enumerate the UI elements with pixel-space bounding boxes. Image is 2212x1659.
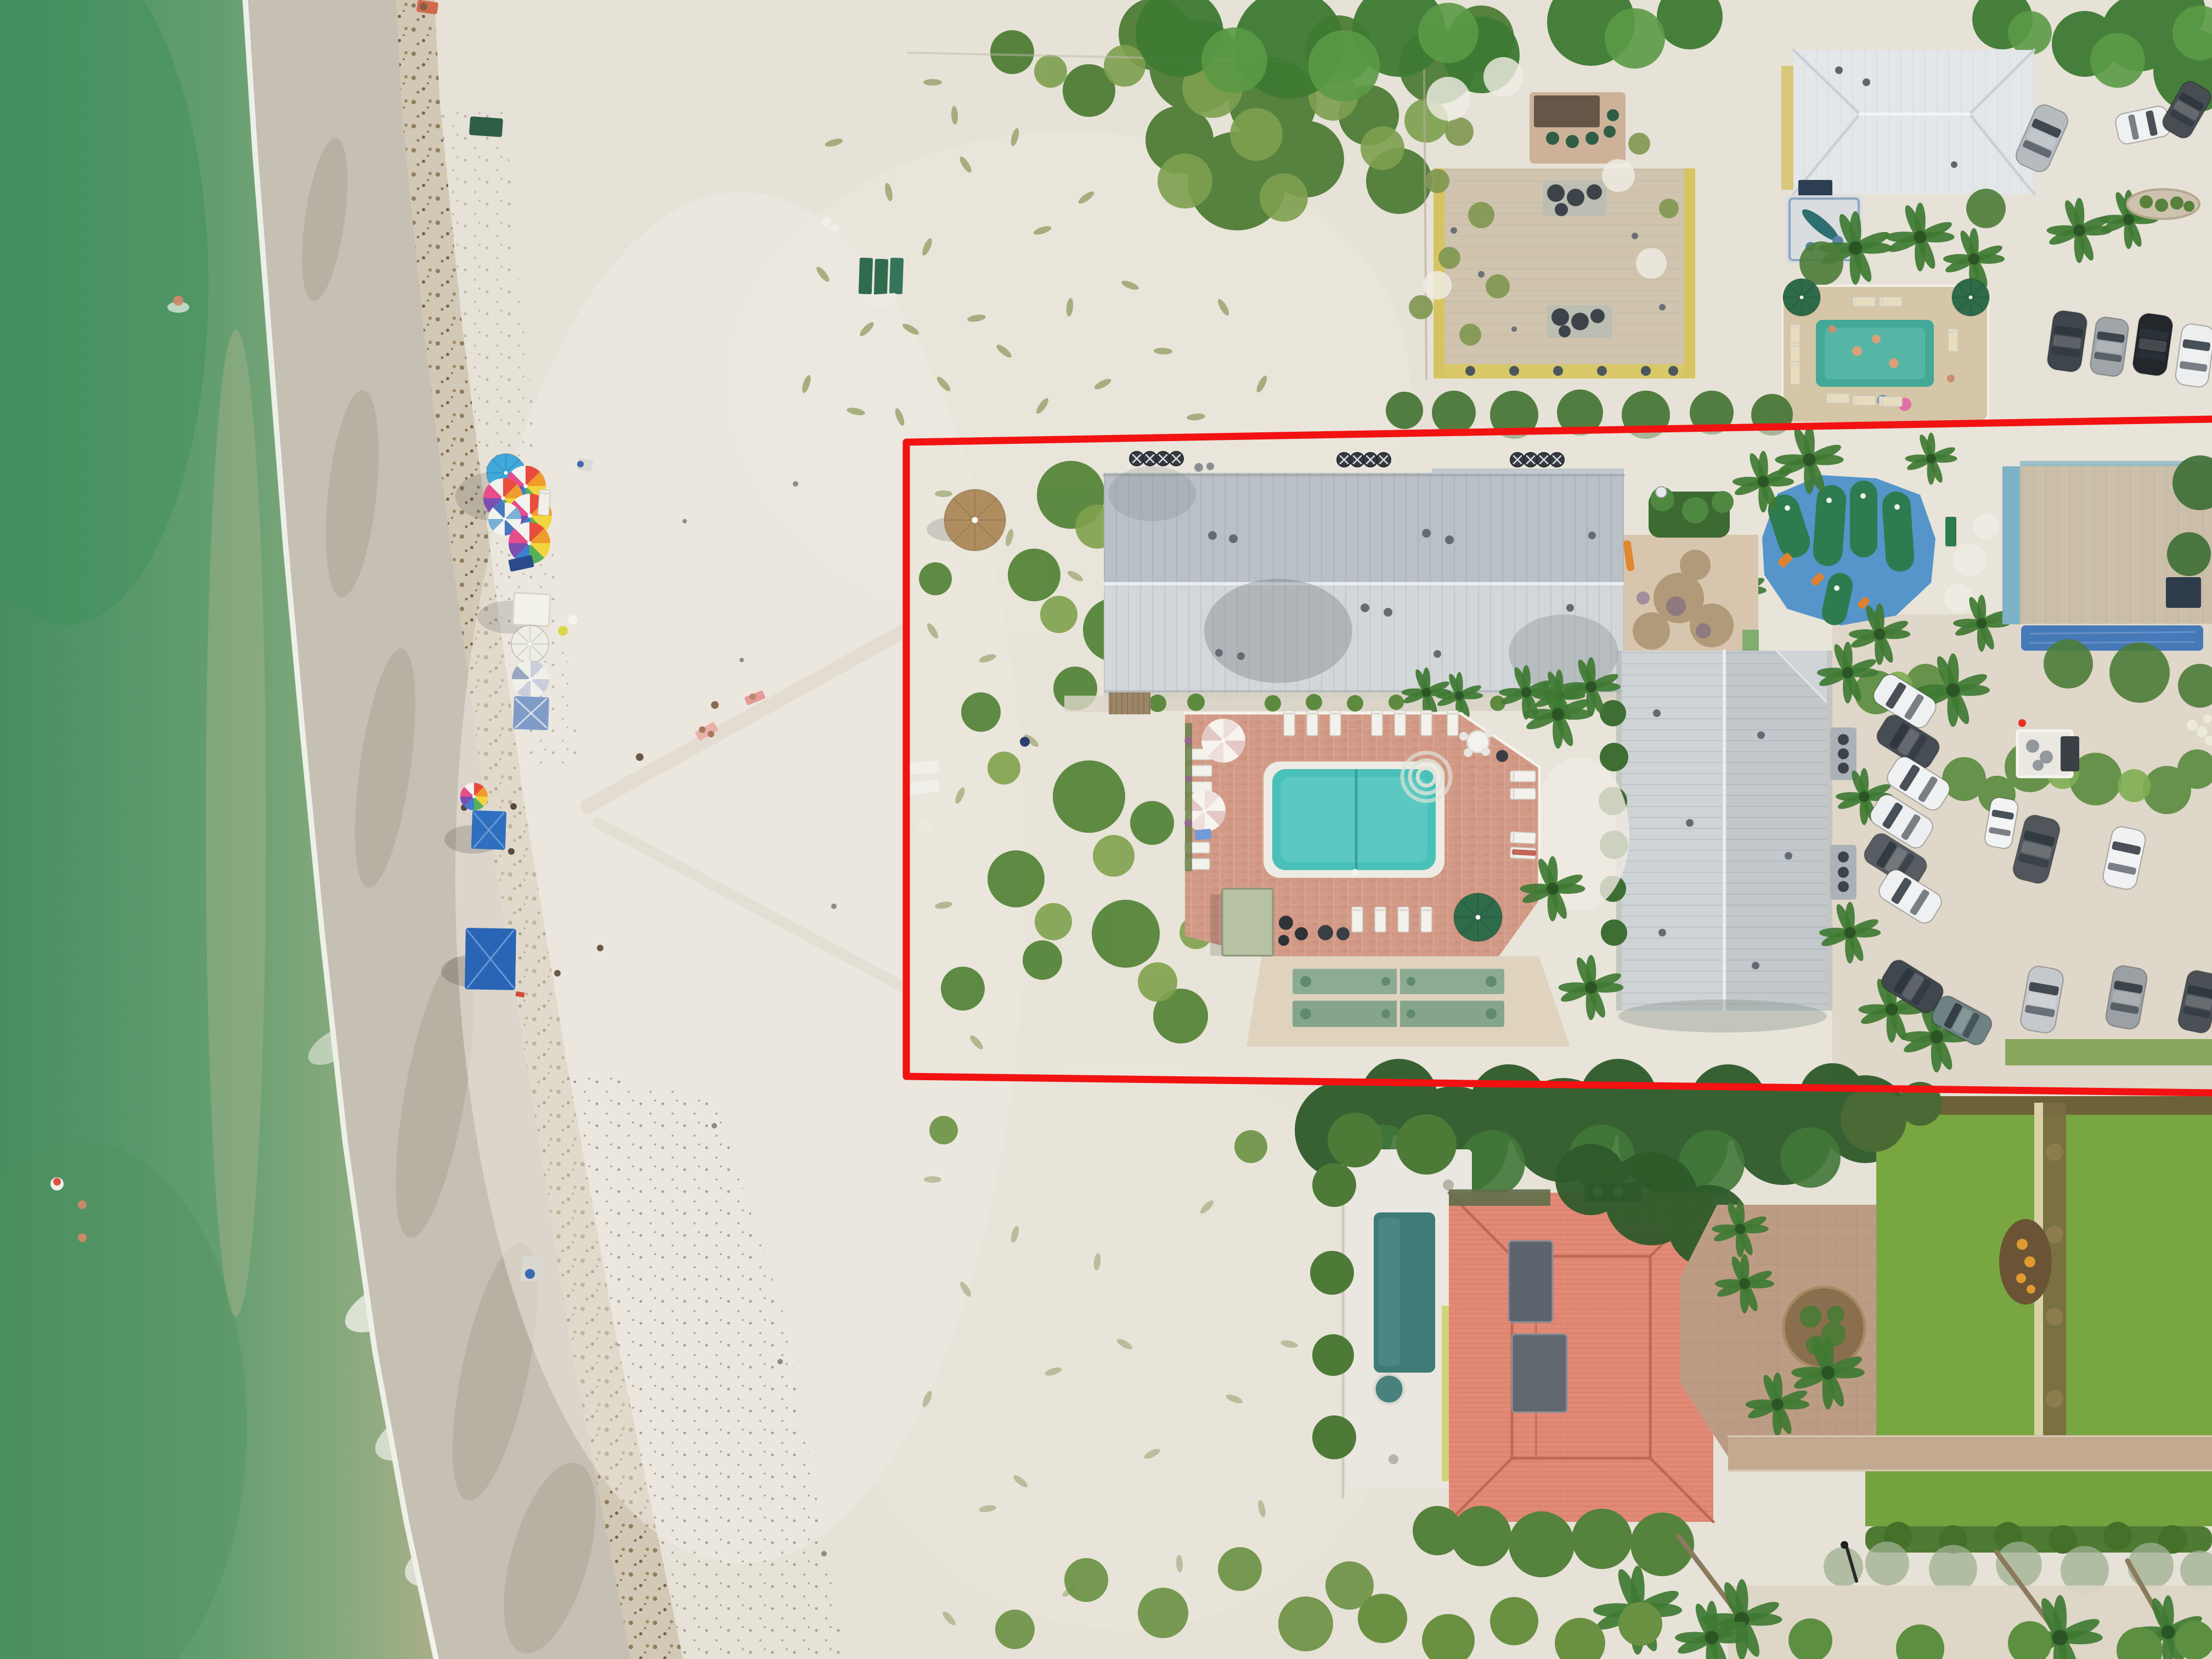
pool-lounger (1284, 710, 1295, 736)
ac-fan (1510, 453, 1525, 467)
minigolf-lane (1881, 490, 1915, 572)
pool-tarp (2021, 625, 2203, 651)
walkway (1728, 1435, 2212, 1471)
beach-chair-blue (1194, 828, 1212, 840)
roof-texture (1793, 50, 2034, 194)
npool-lounger (1853, 396, 1876, 405)
lap-pool-light (1378, 1218, 1400, 1366)
pool-lounger (1510, 832, 1536, 844)
yellow-building-wall-east (1684, 168, 1695, 377)
aerial-photo (0, 0, 2212, 1659)
skylight (2166, 577, 2201, 608)
flag-marker (2018, 719, 2026, 727)
cabana-roof (1222, 889, 1273, 956)
ac-fan (1143, 452, 1157, 466)
ac-fan (1169, 452, 1183, 466)
beach-lounger-green (874, 259, 888, 296)
ac-fan (1537, 453, 1551, 467)
npool-lounger (1853, 297, 1876, 307)
sandbar (206, 329, 266, 1317)
npool-lounger (1790, 362, 1800, 385)
shed-roof (1742, 630, 1759, 653)
pool-lounger (1307, 710, 1318, 736)
tree-shadow (1108, 466, 1196, 521)
person (711, 701, 719, 709)
trailer (2061, 736, 2079, 771)
cart-bag-blue (577, 461, 584, 467)
npool-lounger (1879, 297, 1902, 307)
cart-bag-blue (525, 1269, 535, 1279)
beach-lounger-white (538, 489, 550, 515)
cabana-shadow (1210, 894, 1222, 956)
ac-fan (1523, 453, 1538, 467)
pool-lounger (1330, 710, 1341, 736)
pool-lounger (1398, 907, 1409, 932)
palapa-umbrella (944, 489, 1006, 551)
green-umbrella (1783, 279, 1820, 316)
pool-lounger (1447, 710, 1458, 736)
green-umbrella (1952, 279, 1989, 316)
pool-lounger (1421, 710, 1432, 736)
ac-fan (1337, 453, 1351, 467)
ac-fan (1550, 453, 1564, 467)
house-wall (1442, 1306, 1449, 1481)
roof-step (1432, 469, 1624, 474)
pink-umbrella (1201, 719, 1245, 763)
beach-lounger-green (469, 116, 503, 137)
lamp-head (1841, 1541, 1848, 1549)
spa (1374, 1374, 1404, 1404)
pool-lounger (1352, 907, 1363, 932)
white-umbrella (511, 625, 549, 663)
grill (1496, 750, 1508, 762)
deck-planter (1185, 723, 1192, 871)
porch-roof (1449, 1189, 1550, 1206)
person (420, 3, 427, 10)
npool-lounger (1879, 397, 1902, 407)
satellite-dish (1656, 487, 1667, 498)
grass-strip (2005, 1039, 2212, 1065)
beach-lounger-green (889, 258, 904, 295)
beach-table (917, 821, 932, 832)
green-umbrella (1454, 893, 1502, 941)
person (749, 693, 756, 700)
building-shadow (1618, 1000, 1827, 1032)
beach-chair-white (568, 615, 578, 625)
ac-fan (1156, 452, 1170, 466)
npool-lounger (1826, 393, 1849, 403)
beach-lounger-green (859, 258, 873, 295)
beach-bag-navy (1020, 737, 1030, 747)
ac-fan (1376, 453, 1391, 467)
blue-wall-west (2002, 466, 2020, 624)
ac-unit-fans (1838, 851, 1849, 892)
beach-lounger-white (864, 293, 897, 308)
ac-fan (1130, 452, 1144, 466)
beach-canopy-white (513, 592, 551, 626)
pool-lounger (1510, 771, 1536, 782)
rainbow-umbrella-small (460, 783, 488, 810)
swimmer (173, 296, 183, 306)
aerial-photo-canvas (0, 0, 2212, 1659)
pergola (1534, 95, 1600, 127)
npool-lounger (1948, 329, 1958, 352)
boardwalk-planks (1109, 692, 1150, 714)
striped-umbrella (512, 661, 549, 698)
pool-lounger (1372, 710, 1383, 736)
buoy-top (53, 1178, 61, 1186)
lounger (909, 760, 939, 775)
tarp-ripple (2030, 642, 2194, 643)
bench (1945, 517, 1956, 546)
eave-shadow (1827, 651, 1832, 1011)
ac-fan (1363, 453, 1378, 467)
pool-lounger (1395, 710, 1406, 736)
tree-shadow (1204, 579, 1352, 683)
ac-unit-fans (1838, 734, 1849, 774)
minigolf-lane (1850, 481, 1877, 557)
sand-path (1064, 696, 1108, 712)
lawn-south (1865, 1471, 2212, 1526)
skylight (1512, 1334, 1567, 1412)
person-yellow (558, 626, 568, 636)
pool-lounger (1375, 907, 1386, 932)
ac-fan (1350, 453, 1364, 467)
skylight (1509, 1241, 1553, 1322)
pool-lounger (1421, 907, 1432, 932)
pool-lounger (1510, 788, 1536, 799)
hip-west-wall (1781, 66, 1793, 190)
pool-ladder (1352, 869, 1358, 876)
minigolf-lane (1812, 484, 1847, 567)
